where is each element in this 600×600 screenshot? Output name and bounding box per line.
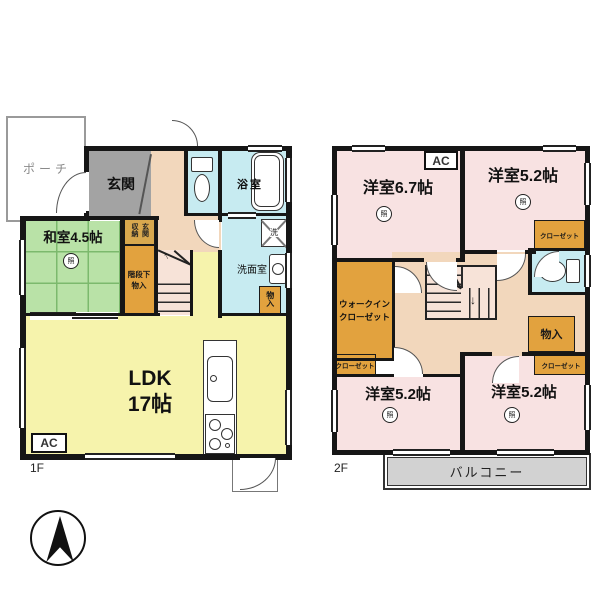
ceiling-light-icon: 照 — [63, 253, 79, 269]
storage-1f-box: 物入 — [259, 286, 281, 315]
floor1-label: 1F — [30, 461, 44, 475]
toilet-1f-door-arc — [172, 120, 198, 146]
wall-segment — [184, 148, 188, 216]
window — [85, 453, 175, 460]
closet-bottom-right-box: クローゼット — [534, 354, 588, 375]
window — [497, 449, 554, 456]
toilet-tank-2f — [566, 259, 580, 283]
window — [19, 240, 26, 295]
ceiling-light-icon: 照 — [504, 407, 520, 423]
genkan-storage-label: 玄関収納 — [129, 223, 150, 239]
window — [584, 255, 591, 287]
bath-label: 浴室 — [224, 176, 276, 192]
kitchen-sink — [207, 356, 233, 402]
washitsu-label: 和室4.5帖 — [28, 226, 118, 246]
light-glyph: 照 — [68, 256, 75, 266]
stove-dial — [225, 443, 230, 448]
light-glyph: 照 — [520, 197, 527, 207]
window — [584, 163, 591, 205]
genkan-storage-box: 玄関収納 — [123, 216, 155, 245]
wall-segment — [332, 258, 424, 262]
light-glyph: 照 — [381, 209, 388, 219]
stair-storage-label-2: 物入 — [132, 280, 147, 291]
closet-bottom-left-label: クローゼット — [336, 360, 375, 370]
stair-storage-box: 階段下 物入 — [123, 245, 155, 315]
ac-box-2f: AC — [424, 151, 458, 170]
window — [352, 145, 385, 152]
toilet-tank-1f — [191, 157, 213, 172]
wall-segment — [190, 250, 193, 316]
wic-label-line1: ウォークイン — [339, 299, 390, 309]
bedroom-52-tr-label: 洋室5.2帖 — [467, 162, 579, 186]
wall-segment — [184, 213, 228, 216]
bedroom-67-label: 洋室6.7帖 — [342, 174, 454, 198]
ceiling-light-icon: 照 — [382, 407, 398, 423]
closet-top-right-box: クローゼット — [534, 220, 585, 250]
wall-segment — [218, 250, 222, 318]
ac-box-1f: AC — [31, 433, 67, 453]
wall-segment — [460, 356, 465, 455]
wall-segment — [460, 352, 492, 356]
balcony-inner: バルコニー — [387, 457, 587, 486]
wall-segment — [522, 352, 588, 356]
wall-segment — [460, 146, 465, 262]
ldk-label: LDK 17帖 — [95, 366, 205, 418]
wall-segment — [20, 313, 160, 316]
window — [285, 390, 292, 445]
storage-2f-label: 物入 — [541, 326, 563, 342]
ceiling-light-icon: 照 — [376, 206, 392, 222]
genkan-label: 玄関 — [96, 174, 146, 194]
washing-machine-pan: 洗 — [261, 219, 287, 247]
window — [331, 390, 338, 432]
bedroom-52-br-label: 洋室5.2帖 — [467, 381, 581, 402]
wall-segment — [465, 250, 497, 254]
ldk-label-line2: 17帖 — [128, 393, 172, 416]
window — [285, 253, 292, 288]
stairs-2f-down-arrow: ↓ — [470, 293, 476, 307]
window — [543, 145, 576, 152]
bedroom-52-bl-label: 洋室5.2帖 — [342, 383, 454, 404]
ac-label-1f: AC — [40, 436, 57, 450]
wall-segment — [20, 216, 90, 221]
wall-segment — [456, 258, 465, 262]
compass-north-icon — [30, 510, 86, 566]
wall-segment — [218, 313, 290, 316]
corridor-1f — [193, 252, 218, 316]
light-glyph: 照 — [509, 410, 516, 420]
light-glyph: 照 — [387, 410, 394, 420]
walk-in-closet-label: ウォークイン クローゼット — [337, 298, 392, 324]
storage-1f-label: 物入 — [265, 291, 275, 311]
stairs-2f-divider — [461, 267, 463, 288]
closet-top-right-label: クローゼット — [540, 230, 579, 240]
wall-segment — [218, 146, 222, 222]
window — [19, 348, 26, 428]
stairs-1f: ↑ — [158, 250, 190, 315]
wall-segment — [528, 248, 532, 295]
toilet-bowl-1f — [194, 174, 210, 202]
wall-segment — [332, 358, 395, 361]
bath-folding-door — [228, 212, 256, 219]
stair-storage-label-1: 階段下 — [128, 269, 151, 280]
wall-segment — [84, 146, 89, 172]
washer-mark: 洗 — [270, 229, 278, 237]
wall-segment — [423, 374, 460, 377]
window — [393, 449, 450, 456]
wall-segment — [120, 216, 125, 316]
ceiling-light-icon: 照 — [515, 194, 531, 210]
compass-arrow — [42, 516, 78, 562]
kitchen-faucet — [210, 375, 217, 382]
window — [248, 145, 282, 152]
wall-segment — [528, 292, 588, 295]
floorplan-canvas: 玄関収納 階段下 物入 物入 ↑ 洗 — [0, 0, 600, 600]
wic-label-line2: クローゼット — [339, 312, 390, 322]
window — [331, 195, 338, 245]
stove-burner — [209, 438, 221, 450]
window — [584, 385, 591, 430]
ac-label-2f: AC — [432, 154, 449, 168]
ldk-label-line1: LDK — [128, 367, 171, 390]
sliding-door-leaf — [72, 317, 118, 319]
balcony: バルコニー — [383, 453, 591, 490]
wall-segment — [332, 374, 394, 377]
wall-segment — [530, 248, 588, 251]
stairs-1f-up-arrow: ↑ — [162, 250, 172, 262]
porch-label: ポーチ — [14, 160, 80, 177]
stairs-1f-treads — [158, 276, 190, 315]
balcony-label: バルコニー — [450, 462, 525, 481]
hallway-1f — [151, 151, 186, 218]
window — [285, 158, 292, 202]
kitchen-stove — [205, 414, 235, 454]
closet-bottom-right-label: クローゼット — [542, 360, 581, 370]
stove-burner — [221, 428, 233, 440]
wall-segment — [155, 216, 158, 316]
washroom-label: 洗面室 — [222, 261, 282, 276]
storage-2f-box: 物入 — [528, 316, 575, 352]
stairs-2f-treads-right — [461, 288, 495, 318]
stove-burner — [209, 419, 221, 431]
floor2-label: 2F — [334, 461, 348, 475]
wall-segment — [256, 213, 290, 216]
